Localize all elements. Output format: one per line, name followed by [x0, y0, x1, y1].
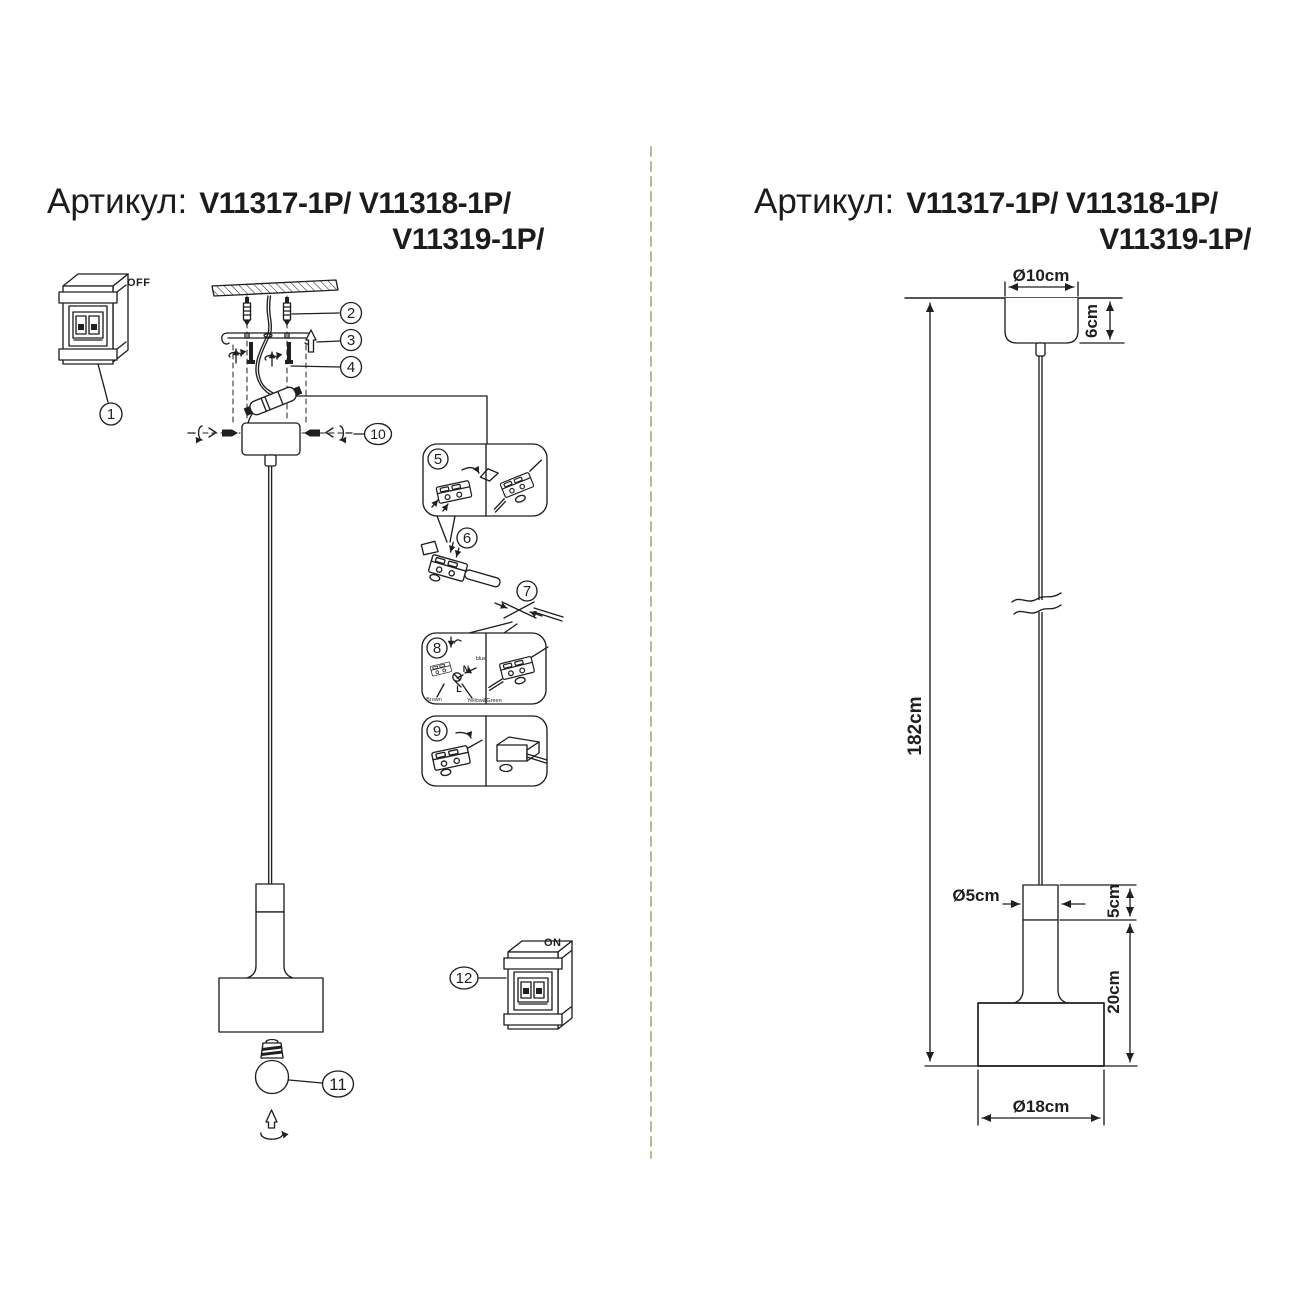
leader-step11 [289, 1080, 322, 1083]
pendant-lamp [219, 884, 323, 1032]
svg-text:4: 4 [347, 359, 355, 376]
step-marker-1: 1 [100, 403, 122, 425]
svg-text:Ø5cm: Ø5cm [952, 886, 999, 905]
leader-5-to-6b [450, 516, 455, 542]
step-marker-10: 10 [365, 424, 392, 445]
switch-off-label: OFF [127, 277, 151, 289]
turn-icon [265, 352, 277, 366]
dim-canopy-diameter: Ø10cm [1005, 266, 1078, 296]
svg-text:Ø10cm: Ø10cm [1013, 266, 1070, 285]
suspension-cord [1012, 356, 1061, 884]
step-marker-4: 4 [341, 357, 362, 378]
ceiling-canopy [242, 423, 300, 884]
dim-cap-height: 5cm [1060, 884, 1136, 920]
leader-7-to-8b [504, 624, 517, 633]
turn-icon-bulb [261, 1110, 283, 1139]
step-marker-12: 12 [450, 967, 478, 989]
wire-label-ground: Yellow&Green [467, 698, 502, 704]
canopy [1005, 298, 1078, 356]
light-bulb [256, 1040, 289, 1094]
svg-text:10: 10 [370, 426, 386, 442]
leader-step1 [98, 364, 108, 402]
svg-text:3: 3 [347, 332, 355, 349]
svg-text:5: 5 [434, 451, 442, 468]
leader-5-to-6a [437, 516, 447, 542]
wire-label-blue: blue [476, 656, 486, 662]
instruction-sheet: Артикул: V11317-1P/ V11318-1P/ V11319-1P… [0, 0, 1300, 1300]
canopy-screw-right [304, 426, 352, 440]
ceiling-hatch [212, 280, 338, 296]
step8-panel: 8 N L blue Brown Yellow&Green [422, 633, 555, 704]
svg-text:2: 2 [347, 305, 355, 322]
svg-text:20cm: 20cm [1104, 970, 1123, 1013]
step-marker-8: 8 [427, 638, 447, 658]
svg-text:12: 12 [456, 970, 473, 987]
mains-cable [256, 296, 273, 395]
wire-label-neutral: N [463, 664, 470, 674]
svg-text:7: 7 [523, 583, 531, 600]
diagram-canvas: OFF 1 [0, 0, 1300, 1300]
switch-on-label: ON [544, 937, 562, 949]
svg-text:182cm: 182cm [905, 696, 926, 755]
leader-step3 [317, 341, 340, 342]
step-marker-2: 2 [341, 303, 362, 324]
dim-cap-diameter: Ø5cm [952, 886, 1085, 905]
step-marker-9: 9 [427, 721, 447, 741]
pendant-lamp-dimensioned [978, 885, 1104, 1066]
svg-text:5cm: 5cm [1104, 884, 1123, 918]
breaker-box-on [504, 941, 572, 1029]
step-marker-7: 7 [517, 581, 537, 601]
wire-label-brown: Brown [426, 697, 442, 703]
dim-overall-drop: 182cm [905, 303, 930, 1061]
dim-shade-diameter: Ø18cm [978, 1070, 1104, 1125]
dim-canopy-height: 6cm [1080, 302, 1124, 343]
svg-text:Ø18cm: Ø18cm [1013, 1097, 1070, 1116]
svg-text:11: 11 [329, 1075, 347, 1094]
svg-text:6: 6 [463, 530, 471, 547]
turn-icon [229, 349, 241, 363]
step-marker-11: 11 [323, 1071, 354, 1097]
right-dimension-diagram: Ø10cm 6cm 182cm Ø5cm [905, 266, 1137, 1125]
left-installation-diagram: OFF 1 [59, 274, 572, 1139]
svg-text:6cm: 6cm [1082, 304, 1101, 338]
leader-step2 [292, 313, 339, 314]
breaker-box-off [59, 274, 128, 364]
step-marker-3: 3 [341, 330, 362, 351]
step-marker-5: 5 [428, 449, 448, 469]
svg-text:8: 8 [433, 640, 441, 657]
step-marker-6: 6 [457, 528, 477, 548]
step5-panel: 5 [423, 444, 553, 516]
svg-text:1: 1 [107, 406, 115, 423]
wire-junction [495, 602, 563, 621]
step9-panel: 9 [422, 716, 547, 786]
svg-text:9: 9 [433, 723, 441, 740]
leader-step4 [291, 366, 340, 367]
alignment-guides [203, 296, 344, 433]
